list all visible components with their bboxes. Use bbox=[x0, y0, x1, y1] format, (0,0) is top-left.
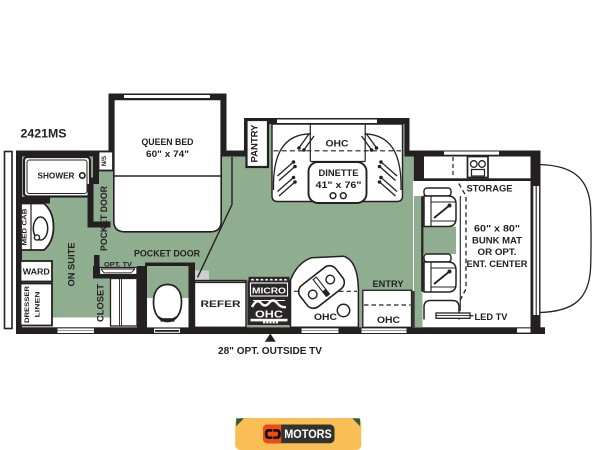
svg-text:DRESSER: DRESSER bbox=[24, 286, 31, 323]
svg-text:OHC: OHC bbox=[255, 309, 283, 320]
svg-text:LED TV: LED TV bbox=[475, 312, 509, 322]
svg-text:MED CAB: MED CAB bbox=[22, 208, 29, 245]
svg-text:60" x 74": 60" x 74" bbox=[146, 149, 189, 159]
svg-text:MOTORS: MOTORS bbox=[284, 429, 332, 441]
svg-text:60" x 80": 60" x 80" bbox=[474, 224, 520, 234]
svg-text:ENT. CENTER: ENT. CENTER bbox=[467, 259, 528, 269]
svg-text:ON SUITE: ON SUITE bbox=[67, 243, 77, 287]
svg-text:REFER: REFER bbox=[201, 299, 242, 309]
svg-text:OPT. TV: OPT. TV bbox=[104, 262, 133, 269]
svg-text:DINETTE: DINETTE bbox=[319, 168, 359, 179]
svg-text:28" OPT. OUTSIDE TV: 28" OPT. OUTSIDE TV bbox=[218, 345, 322, 357]
svg-text:OHC: OHC bbox=[326, 139, 350, 149]
svg-text:BUNK MAT: BUNK MAT bbox=[472, 235, 522, 245]
svg-text:OR OPT.: OR OPT. bbox=[478, 247, 517, 257]
svg-text:ENTRY: ENTRY bbox=[373, 279, 404, 289]
svg-text:POCKET DOOR: POCKET DOOR bbox=[134, 249, 201, 259]
svg-text:POCKET DOOR: POCKET DOOR bbox=[99, 185, 109, 251]
svg-text:PANTRY: PANTRY bbox=[249, 124, 259, 162]
svg-text:LINEN: LINEN bbox=[35, 291, 42, 317]
svg-text:41" x 76": 41" x 76" bbox=[316, 180, 362, 191]
svg-text:N/S: N/S bbox=[101, 156, 108, 166]
svg-text:MICRO: MICRO bbox=[252, 286, 286, 296]
svg-text:2421MS: 2421MS bbox=[21, 129, 67, 141]
svg-text:SHOWER: SHOWER bbox=[38, 170, 75, 180]
svg-text:QUEEN BED: QUEEN BED bbox=[142, 137, 194, 147]
svg-text:OHC: OHC bbox=[314, 312, 338, 322]
svg-text:OHC: OHC bbox=[377, 315, 401, 325]
svg-text:STORAGE: STORAGE bbox=[467, 183, 513, 193]
svg-text:CLOSET: CLOSET bbox=[96, 283, 106, 322]
svg-text:WARD: WARD bbox=[23, 268, 50, 277]
